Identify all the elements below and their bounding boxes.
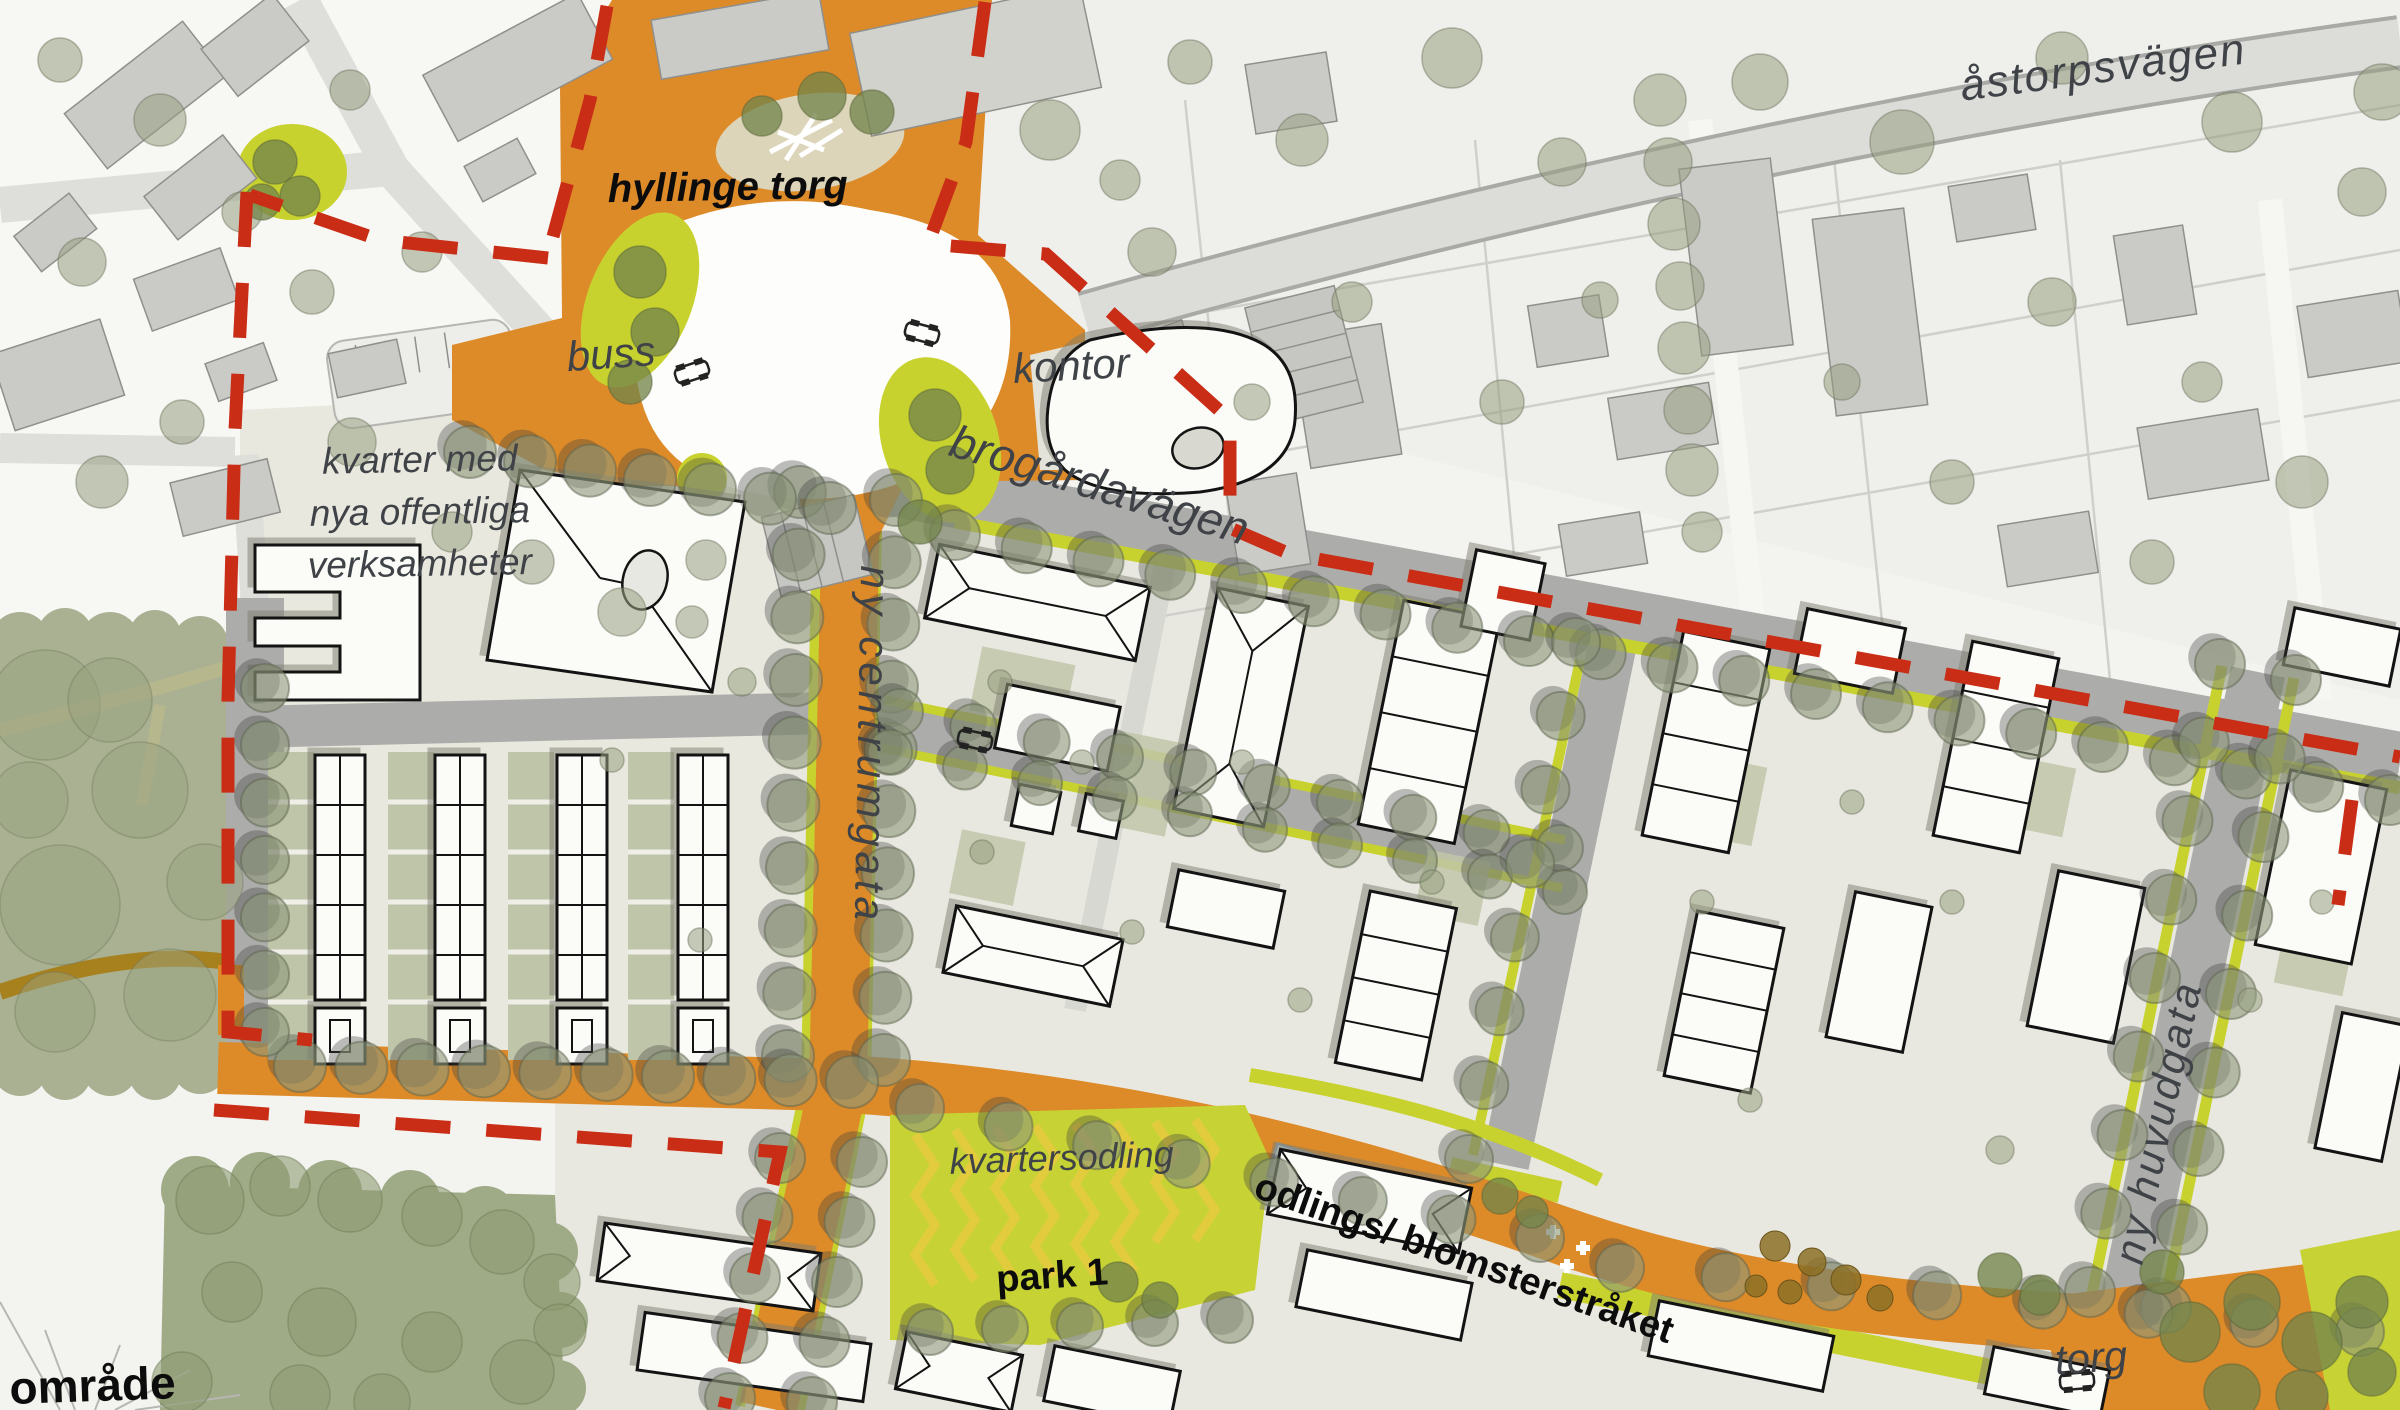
tree-icon [1420, 870, 1444, 894]
tree-icon [2190, 1048, 2240, 1098]
tree-icon [765, 1054, 817, 1106]
tree-icon [1913, 1271, 1961, 1319]
tree-icon [2202, 92, 2262, 152]
tree-icon [2195, 639, 2245, 689]
tree-icon [1538, 138, 1586, 186]
tree-icon [534, 1304, 586, 1356]
tree-icon [176, 1166, 244, 1234]
tree-icon [335, 1042, 387, 1094]
label-kvarter-line1: kvarter med [322, 437, 519, 481]
tree-icon [1863, 682, 1913, 732]
tree-icon [280, 176, 320, 216]
tree-icon [642, 1051, 694, 1103]
tree-icon [2174, 1126, 2224, 1176]
tree-icon [1930, 460, 1974, 504]
tree-icon [290, 270, 334, 314]
tree-icon [825, 1197, 875, 1247]
tree-icon [1422, 28, 1482, 88]
tree-icon [1658, 322, 1710, 374]
tree-icon [2310, 890, 2334, 914]
tree-icon [1831, 1265, 1861, 1295]
tree-icon [1390, 795, 1436, 841]
tree-icon [1057, 1303, 1103, 1349]
tree-icon [1289, 576, 1339, 626]
tree-icon [2130, 540, 2174, 584]
tree-icon [1243, 808, 1287, 852]
tree-icon [1070, 750, 1094, 774]
tree-icon [1207, 1297, 1253, 1343]
tree-icon [703, 1052, 755, 1104]
tree-icon [1732, 54, 1788, 110]
tree-icon [1648, 198, 1700, 250]
tree-icon [581, 1049, 633, 1101]
tree-icon [318, 1168, 382, 1232]
tree-icon [728, 668, 756, 696]
tree-icon [1482, 1178, 1518, 1214]
tree-icon [288, 1288, 356, 1356]
urban-plan-map: åstorpsvägen hyllinge torg buss kontor b… [0, 0, 2400, 1410]
tree-icon [2238, 988, 2262, 1012]
tree-icon [2276, 456, 2328, 508]
tree-icon [58, 238, 106, 286]
tree-icon [1432, 603, 1482, 653]
tree-icon [38, 38, 82, 82]
tree-icon [241, 951, 289, 999]
tree-icon [1690, 890, 1714, 914]
tree-icon [598, 588, 646, 636]
tree-icon [2282, 1312, 2342, 1372]
tree-icon [241, 721, 289, 769]
tree-icon [160, 400, 204, 444]
tree-icon [837, 1137, 887, 1187]
north-block-street [248, 713, 830, 727]
tree-icon [1002, 523, 1052, 573]
tree-icon [1100, 160, 1140, 200]
tree-icon [2271, 655, 2321, 705]
tree-icon [330, 70, 370, 110]
tree-icon [1145, 550, 1195, 600]
tree-icon [1682, 512, 1722, 552]
tree-icon [988, 670, 1012, 694]
tree-icon [614, 246, 666, 298]
tree-icon [1142, 1282, 1178, 1318]
tree-icon [2028, 278, 2076, 326]
tree-icon [1867, 1285, 1893, 1311]
tree-icon [907, 1309, 953, 1355]
tree-icon [1644, 138, 1692, 186]
tree-icon [2224, 1274, 2280, 1330]
tree-icon [970, 840, 994, 864]
tree-icon [982, 1306, 1028, 1352]
tree-icon [2255, 734, 2305, 784]
tree-icon [771, 591, 823, 643]
tree-icon [1702, 1253, 1750, 1301]
tree-icon [1516, 1196, 1548, 1228]
label-kvarter-line2: nya offentliga [309, 489, 530, 534]
label-kontor: kontor [1012, 339, 1133, 392]
tree-icon [1760, 1231, 1790, 1261]
tree-icon [241, 664, 289, 712]
tree-icon [1018, 761, 1062, 805]
tree-icon [763, 967, 815, 1019]
tree-icon [1552, 618, 1600, 666]
label-kvarter-line3: verksamheter [307, 541, 533, 586]
tree-icon [2157, 1205, 2207, 1255]
tree-icon [1824, 364, 1860, 400]
tree-icon [1093, 777, 1137, 821]
tree-icon [769, 717, 821, 769]
tree-icon [470, 1210, 534, 1274]
tree-icon [898, 500, 942, 544]
tree-icon [765, 905, 817, 957]
tree-icon [1648, 643, 1698, 693]
tree-icon [2006, 709, 2056, 759]
tree-icon [600, 748, 624, 772]
tree-icon [1168, 40, 1212, 84]
tree-icon [800, 1317, 850, 1367]
tree-icon [798, 72, 846, 120]
tree-icon [676, 606, 708, 638]
tree-icon [1778, 1280, 1802, 1304]
tree-icon [253, 140, 297, 184]
tree-icon [1745, 1275, 1767, 1297]
tree-icon [202, 1262, 262, 1322]
tree-icon [241, 779, 289, 827]
tree-icon [397, 1044, 449, 1096]
tree-icon [15, 972, 95, 1052]
tree-icon [1664, 386, 1712, 434]
tree-icon [2065, 1267, 2115, 1317]
tree-icon [850, 90, 894, 134]
tree-icon [1361, 590, 1411, 640]
tree-icon [766, 842, 818, 894]
tree-icon [1719, 656, 1769, 706]
tree-icon [1506, 840, 1554, 888]
tree-icon [1288, 988, 1312, 1012]
tree-icon [68, 658, 152, 742]
tree-icon [1230, 750, 1254, 774]
tree-icon [124, 949, 216, 1041]
tree-icon [1074, 537, 1124, 587]
tree-icon [402, 1312, 462, 1372]
tree-icon [688, 928, 712, 952]
tree-icon [2146, 875, 2196, 925]
tree-icon [1986, 1136, 2014, 1164]
tree-icon [1234, 384, 1270, 420]
tree-icon [524, 1254, 580, 1310]
tree-icon [1276, 114, 1328, 166]
tree-icon [1791, 669, 1841, 719]
tree-icon [76, 456, 128, 508]
label-buss: buss [565, 327, 657, 380]
tree-icon [1634, 74, 1686, 126]
tree-icon [1870, 110, 1934, 174]
tree-icon [2182, 362, 2222, 402]
tree-icon [1120, 920, 1144, 944]
tree-icon [767, 779, 819, 831]
tree-icon [250, 1156, 310, 1216]
tree-icon [402, 1186, 462, 1246]
label-torg: torg [2053, 1332, 2128, 1384]
label-kvartersodling: kvartersodling [949, 1133, 1174, 1182]
tree-icon [686, 540, 726, 580]
tree-icon [2336, 1276, 2388, 1328]
tree-icon [0, 762, 68, 838]
tree-icon [519, 1047, 571, 1099]
tree-icon [2163, 796, 2213, 846]
tree-icon [1168, 792, 1212, 836]
tree-icon [1738, 1088, 1762, 1112]
tree-icon [1332, 282, 1372, 322]
tree-icon [1445, 1135, 1493, 1183]
tree-icon [2338, 168, 2386, 216]
tree-icon [1666, 444, 1718, 496]
tree-icon [896, 1084, 944, 1132]
label-hyllinge-torg: hyllinge torg [607, 163, 848, 211]
tree-icon [1317, 780, 1363, 826]
tree-icon [1217, 563, 1267, 613]
tree-icon [92, 742, 188, 838]
tree-icon [770, 654, 822, 706]
tree-icon [1318, 823, 1362, 867]
tree-icon [241, 836, 289, 884]
tree-icon [744, 473, 796, 525]
tree-icon [1476, 987, 1524, 1035]
tree-icon [1521, 766, 1569, 814]
tree-icon [1656, 262, 1704, 310]
tree-icon [1128, 228, 1176, 276]
tree-icon [2020, 1275, 2060, 1315]
tree-icon [859, 972, 911, 1024]
label-ny-centrumgata: ny centrumgata [846, 565, 899, 925]
tree-icon [1460, 1061, 1508, 1109]
label-park-1: park 1 [995, 1251, 1110, 1301]
tree-icon [2160, 1302, 2220, 1362]
tree-icon [458, 1045, 510, 1097]
tree-icon [826, 1056, 878, 1108]
tree-icon [241, 893, 289, 941]
tree-icon [2078, 722, 2128, 772]
tree-icon [812, 1257, 862, 1307]
tree-icon [684, 463, 736, 515]
label-omrade: område [9, 1356, 177, 1410]
tree-icon [0, 845, 120, 965]
tree-icon [1537, 692, 1585, 740]
tree-icon [1480, 380, 1524, 424]
tree-icon [804, 482, 856, 534]
tree-icon [1940, 890, 1964, 914]
tree-icon [564, 445, 616, 497]
tree-icon [742, 96, 782, 136]
tree-icon [1840, 790, 1864, 814]
tree-icon [2239, 812, 2289, 862]
tree-icon [1491, 913, 1539, 961]
tree-icon [1935, 696, 1985, 746]
tree-icon [624, 454, 676, 506]
tree-icon [2222, 891, 2272, 941]
tree-icon [134, 94, 186, 146]
tree-icon [2348, 1348, 2396, 1396]
tree-icon [1798, 1248, 1826, 1276]
tree-icon [1582, 282, 1618, 318]
tree-icon [1020, 100, 1080, 160]
tree-icon [1978, 1253, 2022, 1297]
tree-icon [773, 529, 825, 581]
